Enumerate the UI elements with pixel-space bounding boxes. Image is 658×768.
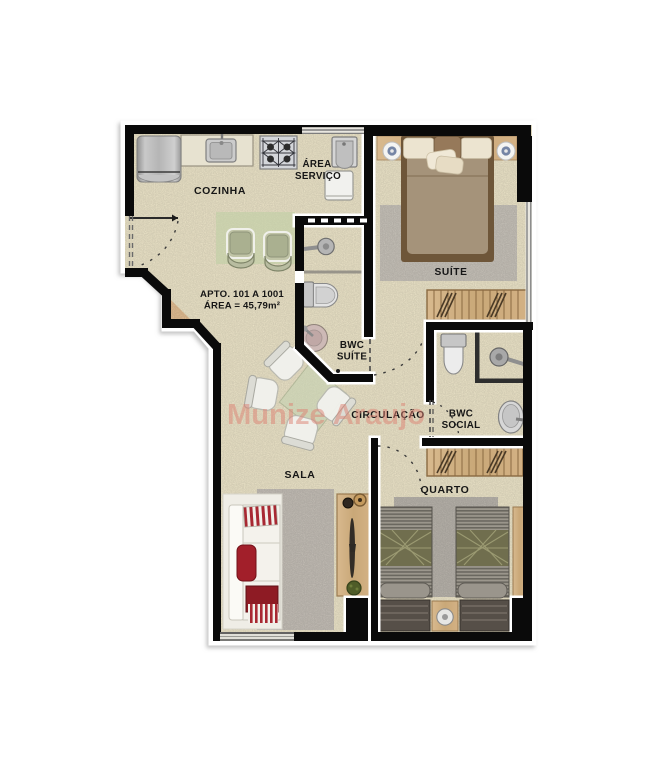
svg-text:COZINHA: COZINHA (194, 185, 246, 197)
svg-text:BWC: BWC (340, 340, 364, 351)
svg-text:SUÍTE: SUÍTE (434, 265, 467, 278)
svg-text:SUÍTE: SUÍTE (337, 351, 368, 363)
svg-text:Munize Araujo: Munize Araujo (227, 399, 425, 431)
svg-text:SALA: SALA (285, 469, 316, 481)
svg-text:ÁREA = 45,79m²: ÁREA = 45,79m² (204, 300, 280, 312)
svg-text:QUARTO: QUARTO (421, 484, 470, 496)
svg-text:SOCIAL: SOCIAL (442, 420, 481, 431)
svg-text:APTO. 101 A 1001: APTO. 101 A 1001 (200, 289, 284, 300)
svg-text:BWC: BWC (449, 409, 473, 420)
svg-text:SERVIÇO: SERVIÇO (295, 171, 341, 182)
svg-text:ÁREA: ÁREA (303, 158, 332, 170)
